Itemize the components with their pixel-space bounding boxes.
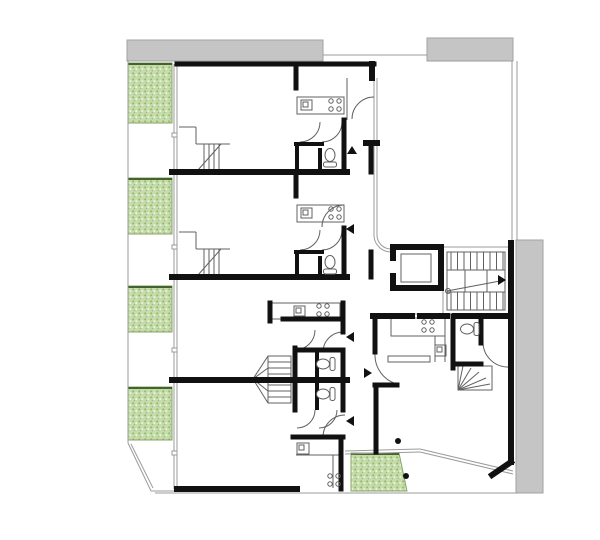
cooktop-burners	[422, 328, 426, 332]
entry-arrow-left	[346, 416, 354, 426]
adjacent-building-top-right	[427, 38, 513, 61]
door-arc	[375, 354, 397, 384]
cooktop-burners	[337, 99, 341, 103]
door-arc	[322, 122, 342, 142]
kitchen-sink-basin	[299, 445, 304, 450]
terrace-garden	[351, 453, 407, 491]
toilet-tank	[330, 358, 335, 371]
plan-layers	[127, 38, 543, 493]
door-arc	[322, 230, 342, 250]
balcony-garden-1	[128, 63, 172, 123]
toilet-icon	[317, 358, 336, 371]
toilet-icon	[461, 323, 480, 336]
kitchen-island	[388, 356, 430, 362]
door-arc	[319, 410, 337, 428]
toilet-tank	[324, 269, 337, 274]
cooktop-burners	[422, 320, 426, 324]
toilet-bowl	[317, 389, 330, 399]
toilet-tank	[324, 162, 337, 167]
floor-plan-canvas	[0, 0, 600, 540]
adjacent-building-right	[516, 240, 543, 493]
kitchen-sink-basin	[303, 102, 308, 107]
door-arc	[483, 342, 508, 367]
corridor-rounded-corner	[374, 235, 391, 252]
toilet-bowl	[461, 324, 474, 334]
cooktop-burners	[430, 328, 434, 332]
wall-layer	[172, 64, 511, 489]
site-line	[128, 443, 151, 491]
door-arc	[352, 97, 374, 119]
cooktop-burners	[328, 474, 332, 478]
cooktop-burners	[337, 107, 341, 111]
door-arc	[295, 330, 315, 350]
stairwell-core	[465, 270, 487, 292]
cooktop-burners	[430, 320, 434, 324]
cooktop-burners	[317, 304, 321, 308]
balcony-garden-4	[128, 387, 172, 440]
detail-line	[458, 384, 490, 390]
kitchen-sink-basin	[437, 347, 442, 352]
entry-arrow-right	[364, 368, 372, 378]
column	[403, 473, 409, 479]
toilet-icon	[324, 149, 337, 168]
kitchen-sink-basin	[296, 308, 301, 313]
door-arc	[297, 410, 315, 428]
column	[395, 438, 401, 444]
cooktop-burners	[325, 312, 329, 316]
window-mullion	[172, 348, 177, 352]
toilet-tank	[474, 323, 479, 336]
toilet-bowl	[317, 359, 330, 369]
door-arc	[300, 122, 320, 142]
toilet-bowl	[325, 256, 335, 269]
toilet-icon	[317, 388, 336, 401]
toilet-icon	[324, 256, 337, 275]
window-mullion	[172, 133, 177, 137]
cooktop-burners	[329, 99, 333, 103]
entry-arrow-left	[346, 224, 354, 234]
kitchen-sink-basin	[303, 210, 308, 215]
cooktop-burners	[337, 207, 341, 211]
toilet-tank	[330, 388, 335, 401]
cooktop-burners	[328, 482, 332, 486]
site-line	[131, 444, 153, 488]
elevator-car	[401, 254, 431, 282]
cooktop-burners	[329, 215, 333, 219]
entry-arrow-left	[346, 332, 354, 342]
balcony-garden-2	[128, 178, 172, 234]
detail-line	[458, 378, 486, 390]
kitchen-counter	[391, 318, 445, 336]
detail-line	[447, 281, 500, 291]
cooktop-burners	[325, 304, 329, 308]
door-arc	[300, 230, 320, 250]
adjacent-building-top-left	[127, 40, 323, 61]
cooktop-burners	[317, 312, 321, 316]
adjacent-building-layer	[127, 38, 543, 493]
cooktop-burners	[329, 107, 333, 111]
cooktop-burners	[337, 215, 341, 219]
balcony-garden-3	[128, 286, 172, 332]
toilet-bowl	[325, 149, 335, 162]
corridor-curve-layer	[374, 235, 391, 252]
floor-plan-page	[0, 0, 600, 540]
entry-arrow-up	[347, 146, 357, 154]
site-line	[345, 449, 420, 451]
window-mullion	[172, 451, 177, 455]
window-mullion	[172, 245, 177, 249]
door-arc	[323, 415, 345, 437]
